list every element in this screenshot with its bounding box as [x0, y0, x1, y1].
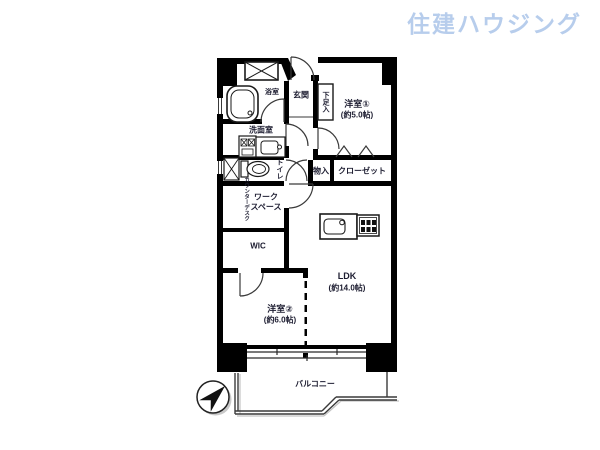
room-label-balcony: バルコニー [295, 379, 335, 388]
toilet-icon [241, 161, 269, 177]
room-label-bathroom: 浴室 [265, 89, 279, 97]
room-label-western1: 洋室① [344, 99, 370, 109]
balcony-window [247, 349, 366, 361]
compass-icon [197, 381, 232, 416]
bathtub-icon [227, 86, 258, 122]
room-label-western2: 洋室② [267, 304, 293, 314]
floorplan-page: 住建ハウジング 浴室 玄関 下足入 洋室① (約5.0帖) 洗面室 トイレ 物入… [0, 0, 600, 450]
room-label-washroom: 洗面室 [249, 125, 273, 134]
pipe-space-icon [245, 62, 278, 80]
pipe-space-icon [224, 158, 239, 180]
room-label-ldk: LDK [338, 271, 357, 281]
room-label-toilet: トイレ [275, 159, 283, 180]
room-label-closet: クローゼット [338, 166, 386, 175]
washing-machine-icon [239, 136, 256, 157]
room-label-shoe-cabinet: 下足入 [321, 92, 329, 113]
stove-icon [357, 215, 379, 236]
label-counter-desk: カウンターデスク [243, 177, 249, 221]
room-label-wic: WIC [250, 241, 266, 250]
agency-logo: 住建ハウジング [407, 5, 582, 39]
room-size-ldk: (約14.0帖) [329, 283, 366, 292]
room-size-western2: (約6.0帖) [264, 315, 296, 324]
kitchen-sink-icon [320, 214, 357, 239]
room-label-workspace-2: スペース [250, 202, 281, 211]
vanity-icon [256, 137, 285, 157]
room-label-entrance: 玄関 [293, 90, 309, 99]
room-label-storage: 物入 [313, 166, 329, 175]
room-size-western1: (約5.0帖) [341, 110, 373, 119]
room-label-workspace-1: ワーク [254, 192, 278, 201]
